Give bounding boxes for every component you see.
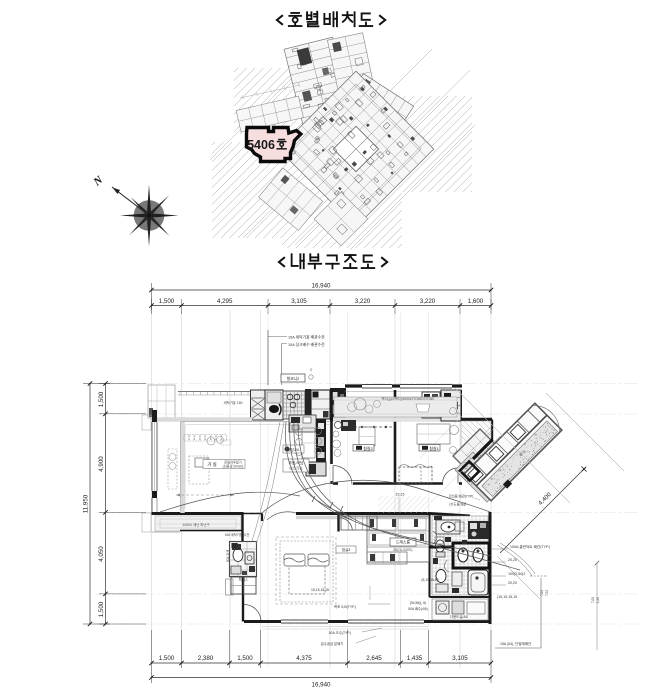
svg-text:침실3: 침실3 <box>342 547 351 552</box>
svg-text:1,500: 1,500 <box>237 655 253 662</box>
svg-text:15A 세탁기용 수전: 15A 세탁기용 수전 <box>225 532 250 537</box>
svg-text:7.02: 7.02 <box>545 590 549 596</box>
svg-text:15A 싱크배수 배관수전: 15A 싱크배수 배관수전 <box>288 342 325 347</box>
svg-text:급수공급 분배기: 급수공급 분배기 <box>321 641 344 646</box>
svg-text:발코니2: 발코니2 <box>287 376 300 381</box>
svg-text:3,220: 3,220 <box>355 298 371 305</box>
svg-text:4,400: 4,400 <box>538 491 553 506</box>
svg-text:1,500: 1,500 <box>98 391 105 407</box>
svg-text:침실2: 침실2 <box>363 445 373 451</box>
svg-text:50A 배수(4/6): 50A 배수(4/6) <box>408 606 427 611</box>
svg-text:욕실2: 욕실2 <box>238 577 247 582</box>
svg-text:벽지(실크벽지)/MONOTONE/STONE: 벽지(실크벽지)/MONOTONE/STONE <box>382 396 436 401</box>
svg-text:드레스룸: 드레스룸 <box>396 540 410 545</box>
svg-text:간선용 배관(TYP): 간선용 배관(TYP) <box>449 494 474 499</box>
svg-text:1,500: 1,500 <box>159 298 175 305</box>
svg-text:2,380: 2,380 <box>198 655 214 662</box>
svg-text:7,00: 7,00 <box>591 597 595 603</box>
svg-text:50A 위생: 50A 위생 <box>225 550 230 562</box>
svg-text:침실1: 침실1 <box>429 445 439 451</box>
svg-text:1,600: 1,600 <box>468 298 484 305</box>
svg-text:욕조 S,B(TYP.): 욕조 S,B(TYP.) <box>334 605 356 609</box>
svg-text:다용도실/AD: 다용도실/AD <box>450 614 469 619</box>
svg-text:4,050: 4,050 <box>98 546 105 562</box>
svg-text:N: N <box>91 173 106 189</box>
svg-text:1050X 제난 피난구: 1050X 제난 피난구 <box>182 522 209 527</box>
svg-text:1,500: 1,500 <box>98 601 105 617</box>
svg-text:20,20: 20,20 <box>508 581 517 585</box>
svg-text:2,645: 2,645 <box>366 655 382 662</box>
svg-text:20,20: 20,20 <box>508 558 517 562</box>
svg-text:15A 세탁기용 배관수전: 15A 세탁기용 배관수전 <box>288 334 325 339</box>
svg-text:7.02: 7.02 <box>540 590 544 596</box>
svg-text:5406: 5406 <box>247 138 275 152</box>
svg-text:거 실: 거 실 <box>207 461 216 468</box>
svg-text:(54,56)(, 6): (54,56)(, 6) <box>410 601 426 605</box>
svg-text:100(2,50(2: 100(2,50(2 <box>508 572 525 576</box>
svg-text:(5,15,15,15: (5,15,15,15 <box>421 578 438 582</box>
svg-text:세탁기놓 180: 세탁기놓 180 <box>223 400 242 405</box>
svg-text:(15,15,15,15: (15,15,15,15 <box>497 595 517 599</box>
svg-text:100A,클린덕트 배관(TYP.): 100A,클린덕트 배관(TYP.) <box>510 544 550 549</box>
svg-text:(친환경 20mm): (친환경 20mm) <box>223 464 244 469</box>
svg-text:4,295: 4,295 <box>217 298 233 305</box>
svg-text:15A (04), 단열재배관: 15A (04), 단열재배관 <box>500 641 532 646</box>
svg-text:3,220: 3,220 <box>420 298 436 305</box>
svg-text:50A 오수(TYP.): 50A 오수(TYP.) <box>329 630 351 635</box>
svg-text:3,105: 3,105 <box>452 655 468 662</box>
svg-text:1,50: 1,50 <box>596 597 600 603</box>
svg-text:1,435: 1,435 <box>407 655 423 662</box>
svg-text:O: O <box>310 368 313 372</box>
svg-text:냉장고A: 냉장고A <box>288 447 300 452</box>
svg-text:16,940: 16,940 <box>312 682 331 689</box>
svg-text:50(OL/100S): 50(OL/100S) <box>394 548 413 552</box>
svg-text:15,15: 15,15 <box>396 493 405 497</box>
svg-text:1,500: 1,500 <box>159 655 175 662</box>
svg-text:4,375: 4,375 <box>296 655 312 662</box>
svg-text:주방/식당: 주방/식당 <box>288 461 304 466</box>
svg-text:15,15,15,15: 15,15,15,15 <box>311 588 329 592</box>
svg-text:4,900: 4,900 <box>98 456 105 472</box>
svg-text:11,950: 11,950 <box>83 494 90 513</box>
svg-text:(수도용 배관: (수도용 배관 <box>449 502 466 507</box>
